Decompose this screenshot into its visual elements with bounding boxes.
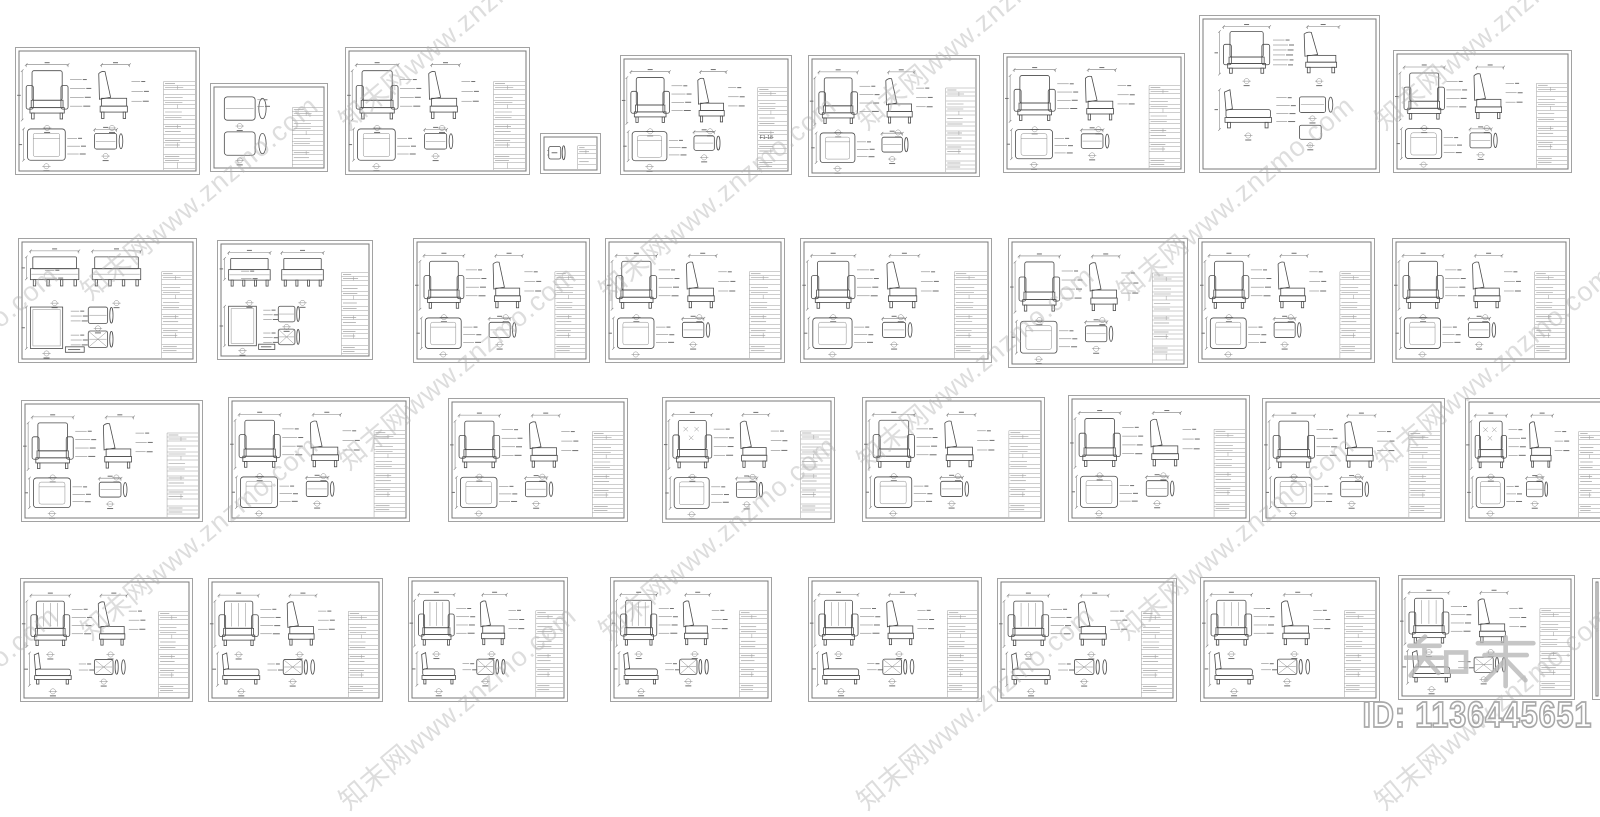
sheet-drawing: [862, 397, 1045, 522]
cad-preview-image: { "page": {"width": 1600, "height": 755,…: [0, 0, 1600, 755]
sheet-drawing: [18, 238, 197, 363]
sheet-drawing: [1003, 53, 1185, 173]
cad-sheet-r2s6: [1008, 238, 1188, 368]
cad-sheet-r2s4: [605, 238, 785, 363]
sheet-drawing: [1465, 398, 1600, 522]
sheet-drawing: [1199, 15, 1380, 173]
cad-sheet-r1s6: [808, 55, 980, 177]
sheet-drawing: [1068, 395, 1250, 522]
sheet-drawing: [1592, 578, 1600, 700]
cad-sheet-r1s1: [15, 47, 200, 175]
sheet-drawing: [21, 400, 203, 522]
sheet-drawing: [605, 238, 785, 363]
sheet-drawing: [210, 83, 328, 172]
cad-sheet-r4s7: [1200, 577, 1380, 702]
cad-sheet-r1s4: [540, 133, 601, 174]
cad-preview-canvas: F1-18 知末网www.znzmo.com知末网www.znzmo.com知末…: [0, 0, 1600, 755]
sheet-drawing: [1393, 50, 1572, 173]
cad-sheet-r3s3: [448, 398, 628, 522]
cad-sheet-r3s6: [1068, 395, 1250, 522]
sheet-drawing: [228, 397, 410, 522]
cad-sheet-r1s7: [1003, 53, 1185, 173]
cad-sheet-r3s7: [1262, 398, 1445, 522]
cad-sheet-r2s7: [1198, 238, 1375, 363]
sheet-drawing: [15, 47, 200, 175]
sheet-drawing: F1-18: [620, 55, 792, 175]
cad-sheet-r2s3: [413, 238, 590, 363]
cad-sheet-r4s9: [1592, 578, 1600, 700]
cad-sheet-r2s5: [800, 238, 992, 363]
sheet-drawing: [413, 238, 590, 363]
sheet-drawing: [662, 397, 835, 523]
cad-sheet-r2s1: [18, 238, 197, 363]
sheet-drawing: [1392, 238, 1570, 363]
cad-sheet-r3s2: [228, 397, 410, 522]
cad-sheet-r3s1: [21, 400, 203, 522]
cad-sheet-r1s2: [210, 83, 328, 172]
cad-sheet-r4s1: [20, 578, 193, 702]
cad-sheet-r4s4: [610, 577, 772, 702]
cad-sheet-r4s8: [1398, 575, 1575, 700]
cad-sheet-r1s3: [345, 47, 530, 175]
sheet-drawing: [1200, 577, 1380, 702]
sheet-drawing: [345, 47, 530, 175]
image-id-label: ID: 1136445651: [1362, 694, 1592, 736]
cad-sheet-r4s3: [408, 577, 568, 702]
sheet-drawing: [800, 238, 992, 363]
cad-sheet-r2s8: [1392, 238, 1570, 363]
cad-sheet-r4s2: [208, 578, 383, 702]
sheet-drawing: [208, 578, 383, 702]
sheet-drawing: [997, 578, 1177, 702]
sheet-drawing: [808, 577, 982, 702]
sheet-drawing: [20, 578, 193, 702]
sheet-drawing: [1398, 575, 1575, 700]
cad-sheet-r1s9: [1393, 50, 1572, 173]
sheet-drawing: [540, 133, 601, 174]
cad-sheet-r1s5: F1-18: [620, 55, 792, 175]
sheet-drawing: [448, 398, 628, 522]
cad-sheet-r1s8: [1199, 15, 1380, 173]
sheet-drawing: [408, 577, 568, 702]
svg-text:F1-18: F1-18: [760, 135, 773, 141]
sheet-drawing: [808, 55, 980, 177]
cad-sheet-r3s5: [862, 397, 1045, 522]
sheet-drawing: [610, 577, 772, 702]
sheet-drawing: [217, 240, 373, 360]
sheet-drawing: [1008, 238, 1188, 368]
cad-sheet-r3s8: [1465, 398, 1600, 522]
sheet-drawing: [1198, 238, 1375, 363]
sheet-drawing: [1262, 398, 1445, 522]
cad-sheet-r4s5: [808, 577, 982, 702]
cad-sheet-r3s4: [662, 397, 835, 523]
cad-sheet-r2s2: [217, 240, 373, 360]
cad-sheet-r4s6: [997, 578, 1177, 702]
